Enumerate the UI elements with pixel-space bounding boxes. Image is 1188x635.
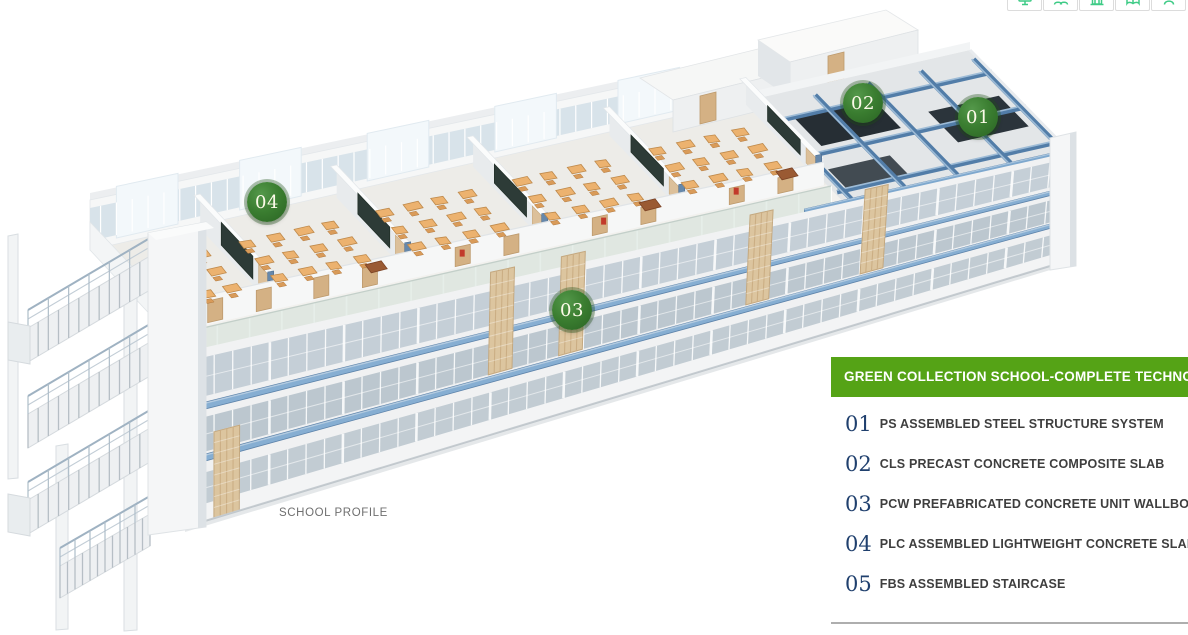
- legend-item: 01 PS ASSEMBLED STEEL STRUCTURE SYSTEM: [845, 412, 1188, 436]
- legend-list: 01 PS ASSEMBLED STEEL STRUCTURE SYSTEM 0…: [845, 412, 1188, 612]
- legend-item: 02 CLS PRECAST CONCRETE COMPOSITE SLAB: [845, 452, 1188, 476]
- building-marker-label: 03: [560, 300, 584, 321]
- legend-number: 01: [845, 412, 872, 436]
- building-marker[interactable]: 01: [958, 97, 998, 137]
- panel-title: GREEN COLLECTION SCHOOL-COMPLETE TECHNOL…: [831, 357, 1188, 397]
- illustration-caption: SCHOOL PROFILE: [279, 507, 388, 519]
- building-marker-label: 01: [966, 107, 990, 128]
- panel-divider: [831, 622, 1188, 624]
- building-icon[interactable]: [1079, 0, 1114, 11]
- building-marker[interactable]: 03: [552, 290, 592, 330]
- page: 01 02 03 04 SCHOOL PROFILE GREEN COLLECT…: [0, 0, 1188, 635]
- legend-text: PCW PREFABRICATED CONCRETE UNIT WALLBOAR…: [880, 497, 1188, 511]
- building-marker-label: 02: [851, 93, 875, 114]
- legend-text: PLC ASSEMBLED LIGHTWEIGHT CONCRETE SLAB: [880, 537, 1188, 551]
- legend-item: 03 PCW PREFABRICATED CONCRETE UNIT WALLB…: [845, 492, 1188, 516]
- legend-number: 03: [845, 492, 872, 516]
- building-marker[interactable]: 02: [843, 83, 883, 123]
- legend-number: 02: [845, 452, 872, 476]
- legend-item: 04 PLC ASSEMBLED LIGHTWEIGHT CONCRETE SL…: [845, 532, 1188, 556]
- person-icon[interactable]: [1151, 0, 1186, 11]
- toolbar: [1007, 0, 1186, 11]
- legend-text: CLS PRECAST CONCRETE COMPOSITE SLAB: [880, 457, 1165, 471]
- monitor-icon[interactable]: [1007, 0, 1042, 11]
- legend-number: 05: [845, 572, 872, 596]
- users-icon[interactable]: [1043, 0, 1078, 11]
- book-icon[interactable]: [1115, 0, 1150, 11]
- legend-text: FBS ASSEMBLED STAIRCASE: [880, 577, 1066, 591]
- building-marker[interactable]: 04: [247, 182, 287, 222]
- legend-item: 05 FBS ASSEMBLED STAIRCASE: [845, 572, 1188, 596]
- legend-text: PS ASSEMBLED STEEL STRUCTURE SYSTEM: [880, 417, 1164, 431]
- legend-number: 04: [845, 532, 872, 556]
- building-marker-label: 04: [255, 192, 279, 213]
